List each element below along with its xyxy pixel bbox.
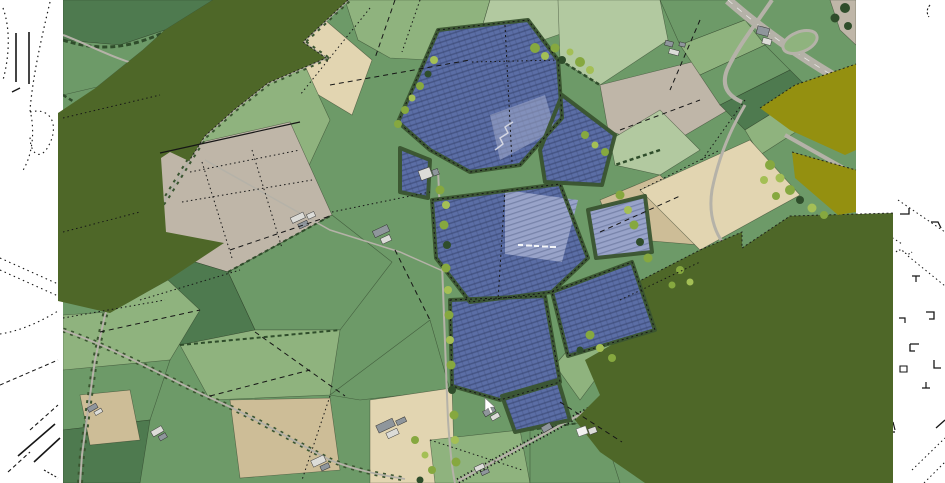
map-viewport[interactable]	[0, 0, 945, 483]
map-canvas[interactable]	[0, 0, 945, 483]
